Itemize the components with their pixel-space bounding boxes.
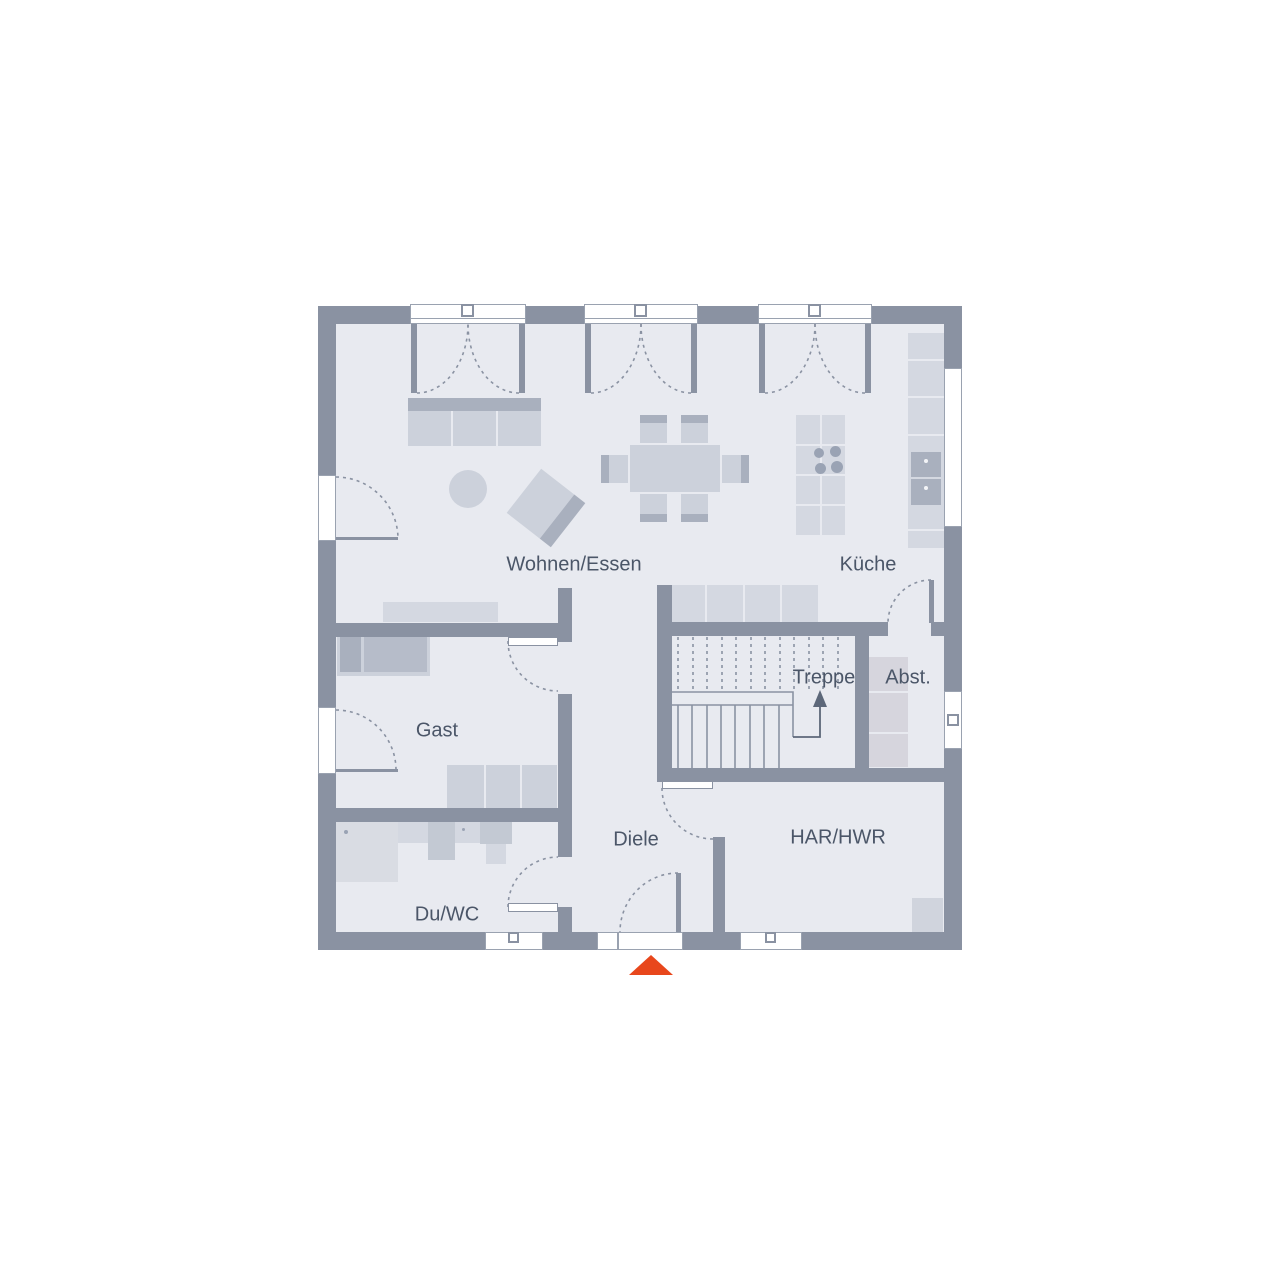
appliance-knob: [924, 459, 928, 463]
wc-bowl: [486, 844, 506, 864]
round-side-table: [449, 470, 487, 508]
sink: [428, 822, 455, 860]
dining-chair: [681, 494, 708, 522]
room-label-kueche: Küche: [840, 554, 897, 577]
french-door-symbol: [808, 304, 821, 317]
room-label-abst: Abst.: [885, 667, 931, 690]
dining-chair: [640, 415, 667, 443]
terrace-door-leaf: [336, 537, 398, 540]
floor-plan-canvas: Wohnen/Essen Küche Treppe Abst. Gast Die…: [0, 0, 1280, 1280]
dresser-seam: [520, 765, 522, 809]
wall-living-guest: [336, 623, 558, 637]
dresser-seam: [484, 765, 486, 809]
appliance-knob: [924, 486, 928, 490]
bench-seam: [705, 585, 707, 622]
wall-corridor: [558, 694, 572, 857]
wall-stair-left: [657, 585, 672, 768]
room-label-treppe: Treppe: [793, 667, 856, 690]
room-label-gast: Gast: [416, 720, 458, 743]
counter-seam: [908, 434, 944, 436]
dining-table: [630, 445, 720, 492]
utility-unit: [912, 898, 943, 932]
bench-seam: [743, 585, 745, 622]
bath-door-leaf: [508, 903, 558, 912]
french-door-post: [691, 324, 697, 393]
french-door-post: [585, 324, 591, 393]
wall-stair-right: [855, 636, 869, 768]
hob-burner: [831, 461, 843, 473]
wall-bath-hall: [558, 907, 572, 932]
terrace-door-guest: [318, 707, 336, 774]
wall-kitchen-stair-end: [931, 622, 944, 636]
wall-corridor-stub: [558, 588, 572, 642]
french-door-post: [865, 324, 871, 393]
sofa-seam: [496, 411, 498, 446]
sofa-seam: [451, 411, 453, 446]
french-door-post: [519, 324, 525, 393]
bench-seam: [780, 585, 782, 622]
wall-guest-bath: [336, 808, 572, 822]
outer-wall-left: [318, 306, 336, 950]
window-handle-symbol: [947, 714, 959, 726]
room-label-diele: Diele: [613, 829, 659, 852]
wall-kitchen-stair: [657, 622, 888, 636]
french-door-symbol: [634, 304, 647, 317]
french-door-post: [759, 324, 765, 393]
terrace-door-living: [318, 475, 336, 541]
island-seam: [796, 504, 845, 506]
entrance-mullion: [617, 932, 619, 950]
oven-appliance: [911, 452, 941, 477]
room-label-wohnen-essen: Wohnen/Essen: [506, 554, 641, 577]
kitchen-door-leaf: [929, 580, 934, 623]
entrance-marker-triangle: [629, 955, 673, 975]
hob-burner: [815, 463, 826, 474]
wall-stair-hall: [657, 768, 944, 782]
window-symbol: [508, 932, 519, 943]
kitchen-window: [944, 368, 962, 527]
counter-seam: [908, 396, 944, 398]
terrace-door-leaf: [336, 769, 398, 772]
window-symbol: [765, 932, 776, 943]
island-seam: [796, 474, 845, 476]
room-label-du-wc: Du/WC: [415, 904, 479, 927]
counter-seam: [908, 529, 944, 531]
room-label-har-hwr: HAR/HWR: [790, 827, 886, 850]
hob-burner: [814, 448, 824, 458]
dining-chair: [640, 494, 667, 522]
shelf-seam: [868, 732, 908, 734]
french-door-symbol: [461, 304, 474, 317]
sideboard: [383, 602, 498, 622]
dining-chair: [681, 415, 708, 443]
shelf-seam: [868, 691, 908, 693]
dining-chair: [601, 455, 628, 483]
french-door-post: [411, 324, 417, 393]
guest-bed-mattress: [364, 636, 427, 672]
tap: [462, 828, 465, 831]
kitchen-counter: [908, 333, 944, 548]
entrance-door-frame: [597, 932, 683, 950]
wc-cistern: [480, 822, 512, 844]
wall-hall-utility: [713, 837, 725, 932]
oven-appliance: [911, 479, 941, 505]
guest-dresser: [447, 765, 557, 809]
sofa-backrest: [408, 398, 541, 411]
utility-door-leaf: [662, 781, 713, 789]
dining-chair: [722, 455, 749, 483]
counter-seam: [908, 359, 944, 361]
entrance-door-leaf: [676, 873, 681, 932]
sofa-seat: [408, 411, 541, 446]
guest-door-leaf: [508, 637, 558, 646]
hob-burner: [830, 446, 841, 457]
guest-bed-pillow: [340, 636, 361, 672]
shower-drain: [344, 830, 348, 834]
